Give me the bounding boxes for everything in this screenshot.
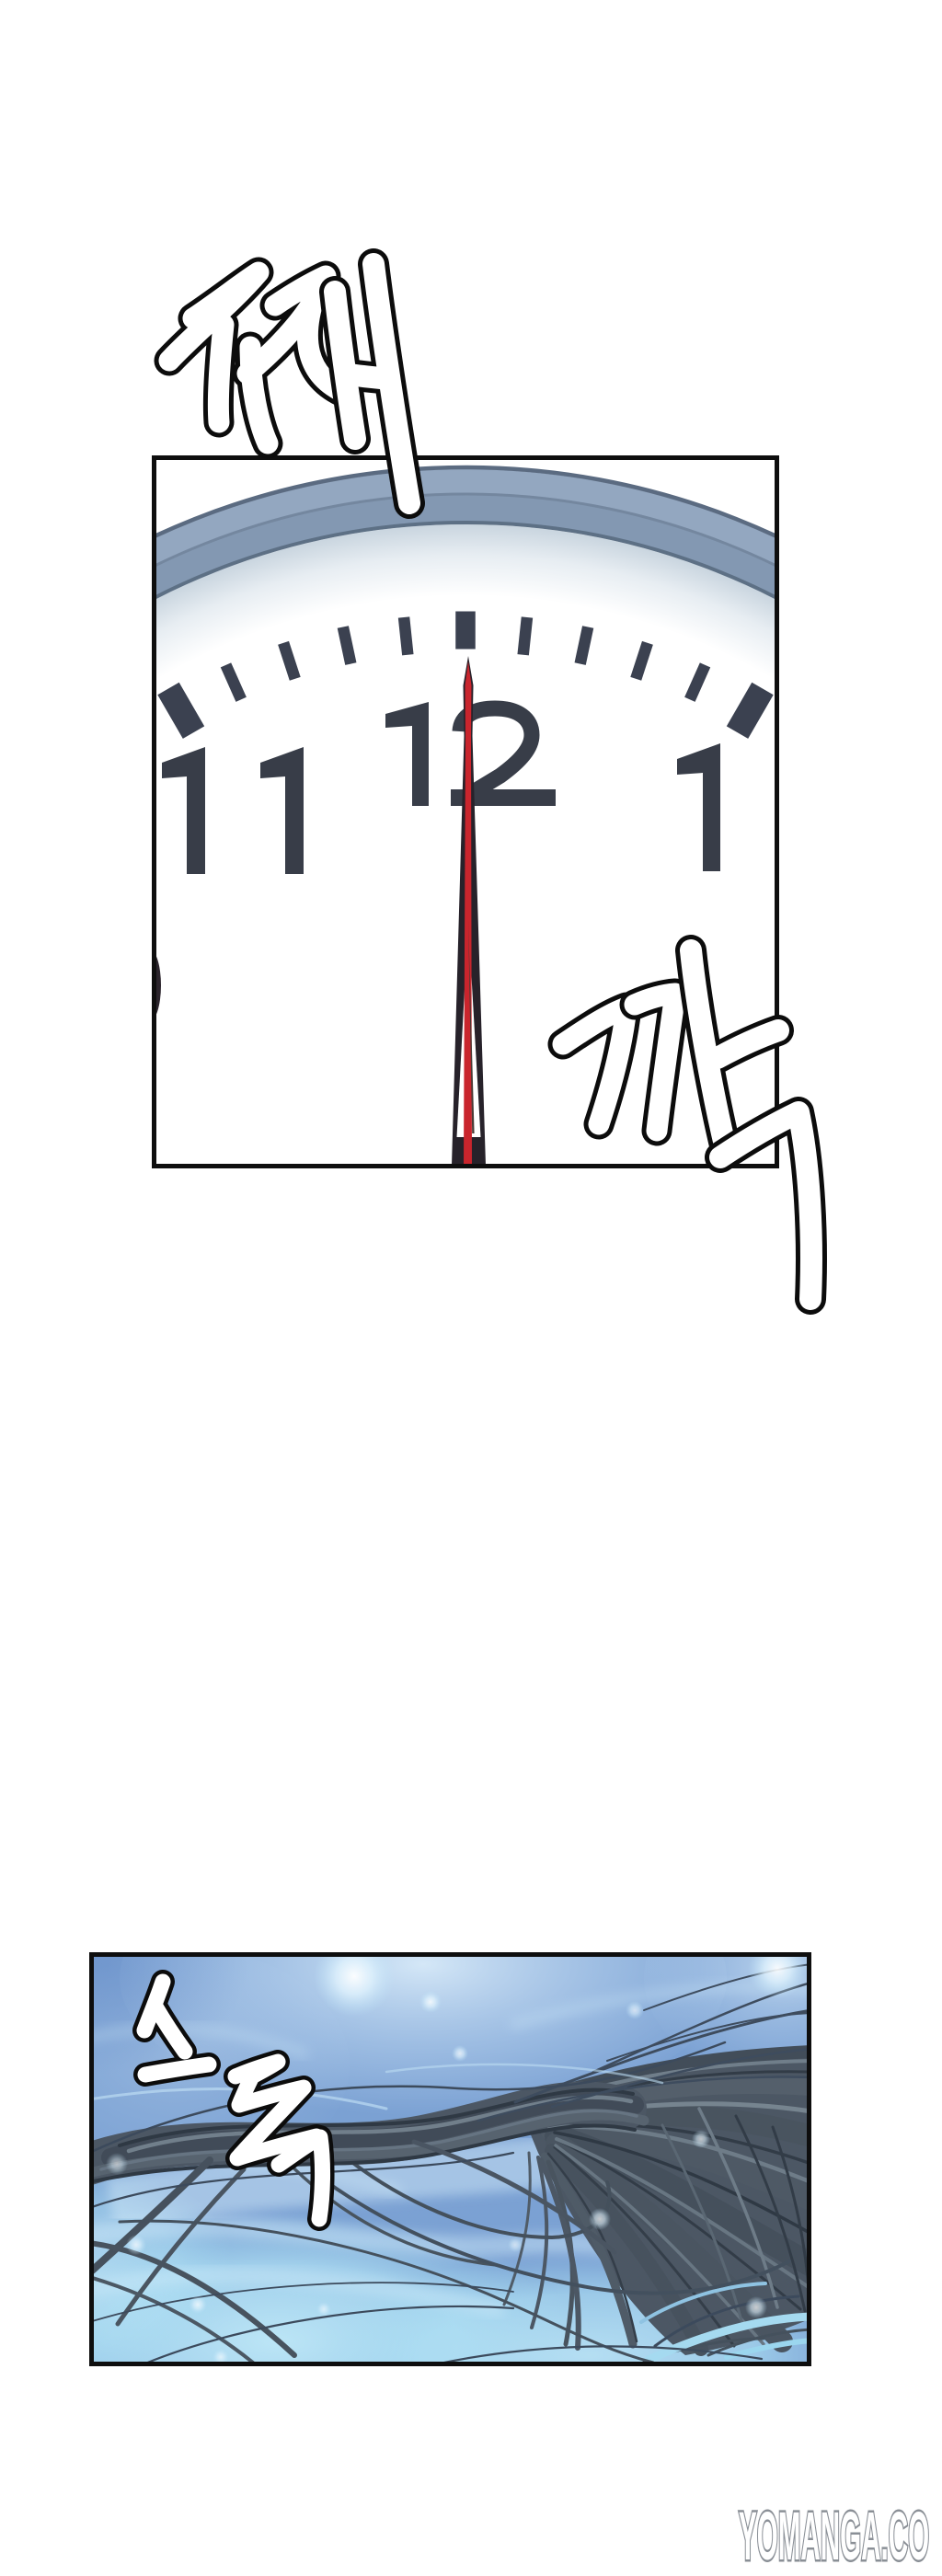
svg-text:YOMANGA.CO: YOMANGA.CO [739,2498,929,2574]
